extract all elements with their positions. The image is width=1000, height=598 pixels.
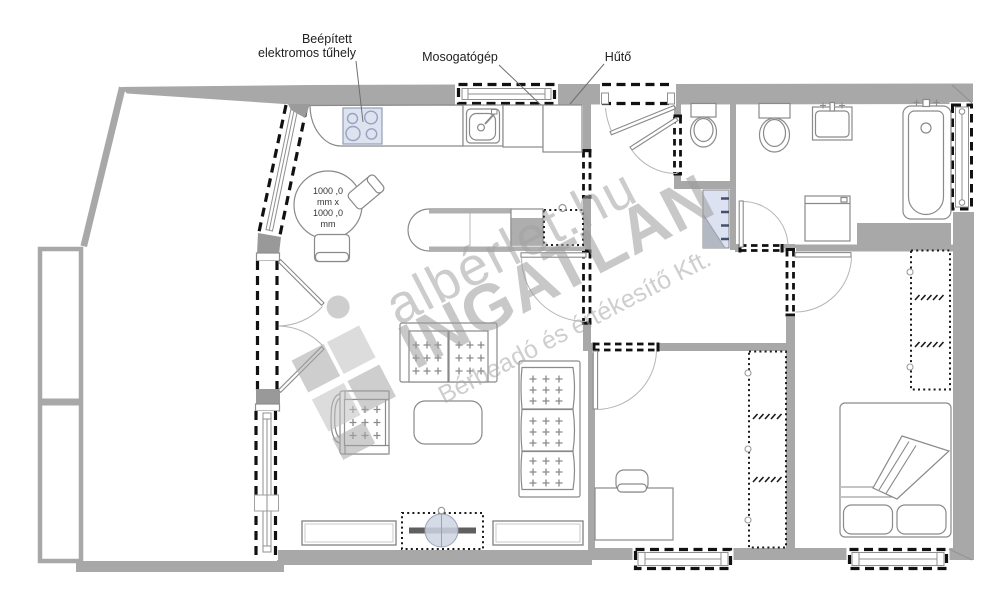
svg-text:1000 ,0: 1000 ,0 <box>313 208 343 218</box>
svg-text:elektromos tűhely: elektromos tűhely <box>258 46 357 60</box>
svg-text:mm x: mm x <box>317 197 339 207</box>
svg-text:mm: mm <box>321 219 336 229</box>
svg-text:Hűtő: Hűtő <box>605 50 631 64</box>
svg-text:Beépített: Beépített <box>302 32 353 46</box>
svg-text:Mosogatógép: Mosogatógép <box>422 50 498 64</box>
svg-text:1000 ,0: 1000 ,0 <box>313 186 343 196</box>
